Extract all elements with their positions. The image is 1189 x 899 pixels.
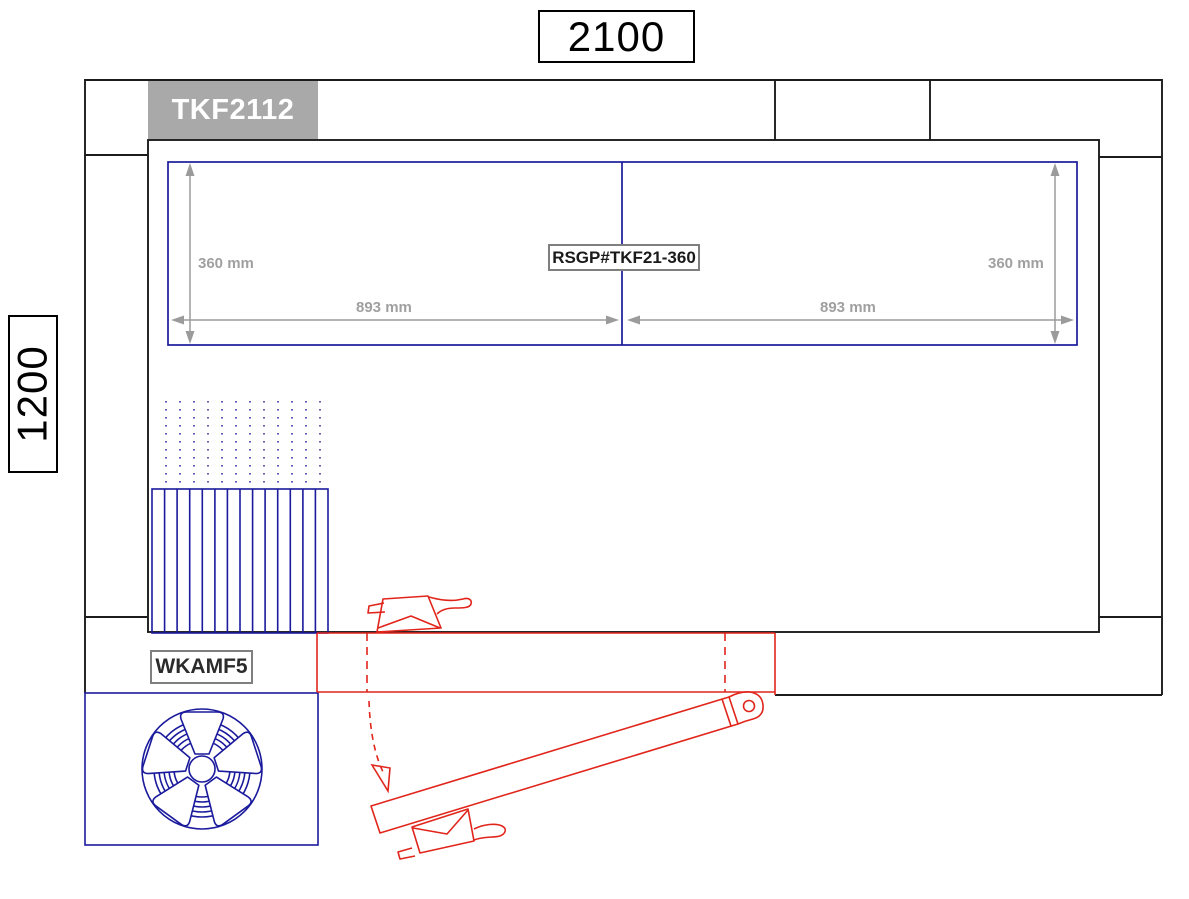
open-panel (371, 692, 763, 833)
arrowhead-icon (1051, 163, 1060, 176)
latch-handle-bottom (398, 809, 505, 859)
arrowhead-icon (627, 316, 640, 325)
outer-boundary (85, 80, 1162, 695)
swing-panel-mechanism (317, 596, 775, 859)
dim-text-right-horizontal: 893 mm (820, 299, 876, 316)
exhaust-grille (152, 489, 328, 633)
dim-text-right-vertical: 360 mm (988, 255, 1044, 272)
hood-plan-drawing: 2100 1200 TKF2112 RSGP#TKF21-360 WKAMF5 … (0, 0, 1189, 899)
dim-text-left-horizontal: 893 mm (356, 299, 412, 316)
perforation-dots (166, 401, 320, 487)
cabinet-frame (85, 80, 1162, 695)
fan-module-badge: WKAMF5 (150, 650, 253, 684)
arrowhead-icon (186, 163, 195, 176)
arrowhead-icon (1061, 316, 1074, 325)
overall-width-value: 2100 (568, 13, 665, 61)
filter-part-value: RSGP#TKF21-360 (552, 248, 696, 268)
overall-width-label: 2100 (538, 10, 695, 63)
hood-model-badge: TKF2112 (148, 81, 318, 139)
fan-module (85, 693, 318, 845)
arrowhead-icon (1051, 331, 1060, 344)
swing-direction-arrow-icon (369, 701, 390, 791)
overall-depth-value: 1200 (9, 345, 57, 442)
latch-handle-top (368, 596, 471, 632)
dim-text-left-vertical: 360 mm (198, 255, 254, 272)
arrowhead-icon (186, 331, 195, 344)
duct-section-closed (317, 633, 775, 695)
fan-module-value: WKAMF5 (155, 655, 247, 679)
arrowhead-icon (606, 316, 619, 325)
arrowhead-icon (171, 316, 184, 325)
hood-model-value: TKF2112 (172, 94, 295, 127)
overall-depth-label: 1200 (8, 315, 58, 473)
axial-fan-icon (141, 709, 263, 829)
hinge-lug (729, 692, 763, 724)
hinge-pin-icon (744, 701, 755, 712)
filter-part-badge: RSGP#TKF21-360 (548, 244, 700, 271)
